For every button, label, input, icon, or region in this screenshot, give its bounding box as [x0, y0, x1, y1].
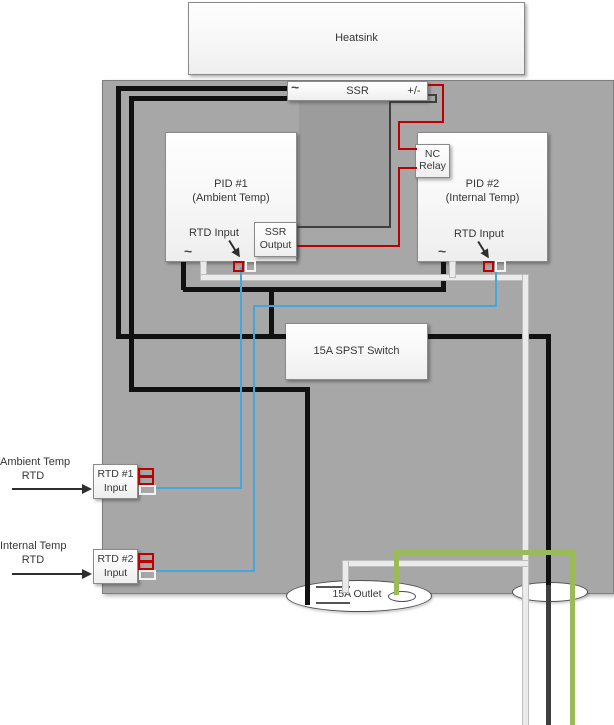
- wire-black-switch-out-h: [428, 334, 551, 339]
- nc-relay-line1: NC: [415, 148, 450, 160]
- pid1-rtd-input-label: RTD Input: [178, 227, 250, 240]
- ambient-rtd-label-line1: Ambient Temp: [0, 456, 66, 469]
- ssr-wire-fill-region: [299, 102, 389, 226]
- wire-black-ssr-feed2-v: [129, 96, 134, 392]
- ssr-output-line1: SSR: [254, 226, 297, 238]
- wire-black-pid1-power-v: [181, 262, 186, 290]
- wire-blue-rtd2-v2: [253, 305, 255, 572]
- pid1-rtd-red-terminal: [233, 261, 244, 272]
- outlet-ground-screw-ellipse: [388, 591, 416, 602]
- rtd2-white-terminal: [139, 570, 156, 580]
- wire-red-relay-out-h: [398, 167, 417, 169]
- wire-blue-rtd2-h1: [254, 305, 497, 307]
- wire-red-ssr-pos-v2: [398, 121, 400, 150]
- rtd2-input-line2: Input: [93, 567, 138, 579]
- outlet-slot-line-bottom: [316, 602, 350, 604]
- internal-rtd-label-line1: Internal Temp: [0, 540, 66, 553]
- wire-red-ssr-pos-h2: [398, 121, 444, 123]
- wire-black-outlet-feed-v: [305, 387, 310, 605]
- wire-black-ssr-feed2-h: [129, 96, 287, 101]
- rtd1-input-line2: Input: [93, 482, 138, 494]
- pid1-power-terminal-label: ~: [184, 243, 192, 259]
- pid1-rtd-white-terminal: [245, 260, 256, 272]
- rtd2-red-terminal-bottom: [138, 561, 154, 570]
- wire-green-cord-v: [570, 550, 575, 725]
- nc-relay-line2: Relay: [415, 160, 450, 172]
- ssr-dc-terminal-label: +/-: [403, 85, 425, 98]
- wire-blue-rtd2-h2: [155, 570, 255, 572]
- wire-white-cord-v: [523, 275, 528, 725]
- wire-blue-rtd1-v: [240, 267, 242, 489]
- wire-black-ssr-feed1-h: [116, 86, 287, 91]
- wire-red-relay-in-h: [398, 148, 417, 150]
- wire-black-power-junction-v: [269, 289, 274, 336]
- pid2-rtd-red-terminal: [483, 261, 494, 272]
- ssr-output-line2: Output: [254, 239, 297, 251]
- rtd2-input-line1: RTD #2: [93, 553, 138, 565]
- wire-white-outlet-h: [343, 561, 528, 566]
- ambient-rtd-label-line2: RTD: [0, 470, 66, 483]
- wire-black-pid-power-h: [183, 287, 446, 292]
- wire-black-switch-out-v: [546, 334, 551, 585]
- wire-green-outlet-v: [394, 552, 399, 595]
- wire-red-relay-out-v: [398, 167, 400, 247]
- pid2-power-terminal-label: ~: [438, 243, 446, 259]
- rtd1-white-terminal: [139, 485, 156, 495]
- wire-white-pid2-v: [450, 262, 455, 277]
- pid1-subtitle: (Ambient Temp): [165, 192, 297, 205]
- wire-gray-ssr-neg-v: [389, 101, 391, 228]
- wiring-diagram: Heatsink ~ SSR +/- PID #1 (Ambient Temp)…: [0, 0, 614, 725]
- wire-gray-ssr-neg-top-h: [389, 101, 437, 103]
- pid2-rtd-white-terminal: [495, 260, 506, 272]
- wire-black-outlet-feed-h: [129, 387, 310, 392]
- pid2-rtd-input-label: RTD Input: [443, 228, 515, 241]
- wire-blue-rtd2-pid-v: [495, 267, 497, 307]
- heatsink-label: Heatsink: [188, 32, 525, 45]
- internal-rtd-arrow-head: [82, 569, 92, 579]
- internal-rtd-arrow-line: [12, 573, 84, 575]
- ambient-rtd-arrow-line: [12, 488, 84, 490]
- spst-switch-label: 15A SPST Switch: [285, 345, 428, 358]
- wire-green-h: [394, 550, 575, 555]
- outlet-label: 15A Outlet: [326, 588, 388, 600]
- wire-white-outlet-v: [343, 561, 348, 592]
- wire-blue-rtd1-h: [155, 487, 242, 489]
- internal-rtd-label-line2: RTD: [0, 554, 66, 567]
- pid1-title: PID #1: [165, 178, 297, 191]
- wire-gray-ssr-neg-bottom-h: [297, 226, 391, 228]
- pid2-title: PID #2: [417, 178, 548, 191]
- wire-red-ssr-pos-v1: [442, 84, 444, 123]
- wire-black-cord-v: [546, 585, 551, 725]
- wire-red-ssr-output-h: [297, 245, 400, 247]
- rtd1-input-line1: RTD #1: [93, 468, 138, 480]
- wire-black-ssr-feed1-v: [116, 86, 121, 338]
- rtd1-red-terminal-bottom: [138, 476, 154, 485]
- wire-white-neutral-h: [201, 275, 528, 280]
- pid2-subtitle: (Internal Temp): [417, 192, 548, 205]
- ambient-rtd-arrow-head: [82, 484, 92, 494]
- wire-black-switch-feed-h: [116, 334, 286, 339]
